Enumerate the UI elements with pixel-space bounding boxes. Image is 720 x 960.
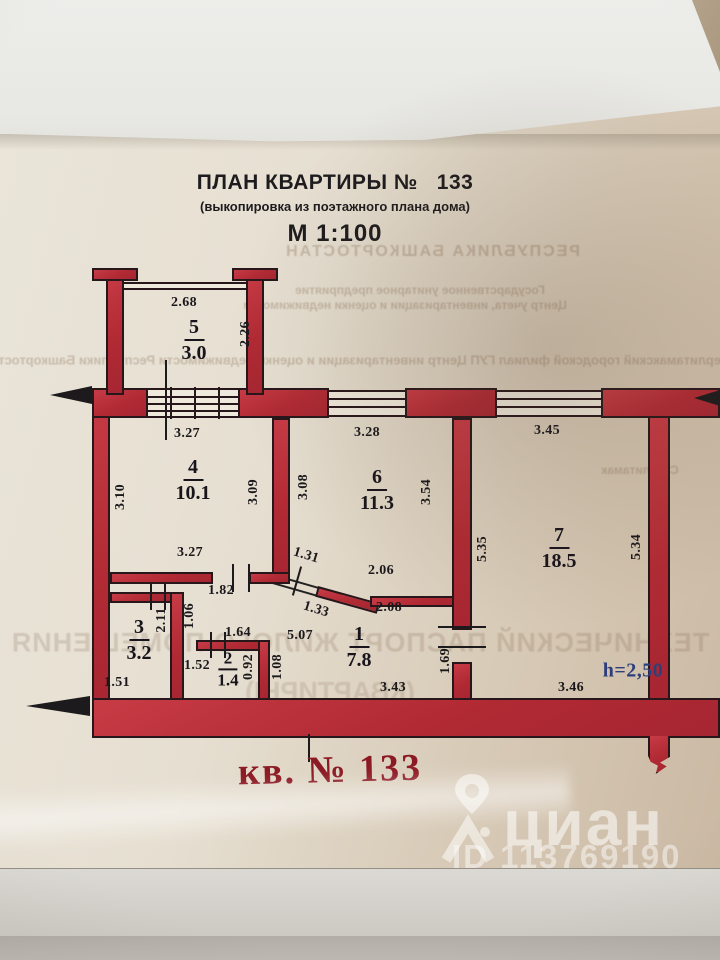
ceiling-height-note: h=2,50 xyxy=(603,660,664,683)
cian-watermark-text: циан xyxy=(503,786,664,860)
window-line xyxy=(329,406,405,408)
room-area: 10.1 xyxy=(176,481,211,505)
room-label-7: 7 18.5 xyxy=(542,525,577,573)
window-tick xyxy=(218,387,220,419)
bottom-paper-shadow xyxy=(0,936,720,960)
page-title-number: 133 xyxy=(437,171,474,194)
room-area: 11.3 xyxy=(360,491,394,515)
wall-room4-room6 xyxy=(272,418,290,580)
window-room7 xyxy=(497,390,601,417)
dim-3-43: 3.43 xyxy=(380,680,406,696)
dim-3-10: 3.10 xyxy=(113,484,129,510)
dim-1-31: 1.31 xyxy=(291,545,321,568)
room-number: 5 xyxy=(184,317,204,341)
room-label-5: 5 3.0 xyxy=(182,317,207,365)
page-title-text: ПЛАН КВАРТИРЫ № xyxy=(197,171,418,194)
door-tick-room7-a xyxy=(438,626,486,628)
dim-3-54: 3.54 xyxy=(419,479,435,505)
page-subtitle: (выкопировка из поэтажного плана дома) xyxy=(0,199,670,214)
room-label-1: 1 7.8 xyxy=(347,624,372,672)
scale-label: М 1:100 xyxy=(0,220,670,248)
wall-room6-room7 xyxy=(452,418,472,630)
room-number: 2 xyxy=(219,649,238,670)
wall-hall-room7-lower xyxy=(452,662,472,700)
window-line xyxy=(497,406,601,408)
dim-2-26: 2.26 xyxy=(238,321,254,347)
wall-room4-bottom-a xyxy=(110,572,213,584)
wall-balcony-left xyxy=(106,270,124,395)
dim-5-34: 5.34 xyxy=(629,534,645,560)
window-tick xyxy=(170,387,172,419)
wall-room4-bottom-b xyxy=(249,572,290,584)
door-tick-room3-a xyxy=(150,584,152,610)
window-line xyxy=(148,410,238,412)
door-tick-room2-a xyxy=(210,632,212,658)
room-number: 7 xyxy=(549,525,569,549)
dim-3-46: 3.46 xyxy=(558,680,584,696)
window-room6 xyxy=(329,390,405,417)
dim-3-45: 3.45 xyxy=(534,423,560,439)
dim-3-09: 3.09 xyxy=(246,479,262,505)
dim-2-08: 2.08 xyxy=(376,600,402,616)
arrow-icon-left-top xyxy=(50,386,92,404)
room-number: 1 xyxy=(349,624,369,648)
dim-5-35: 5.35 xyxy=(475,536,491,562)
room-number: 6 xyxy=(367,467,387,491)
window-tick xyxy=(194,387,196,419)
door-tick-room4-b xyxy=(248,564,250,592)
wall-balcony-cap-right xyxy=(232,268,278,281)
room-area: 3.0 xyxy=(182,341,207,365)
dim-5-07: 5.07 xyxy=(287,628,313,644)
room-label-2: 2 1.4 xyxy=(217,649,238,690)
wall-room2-right xyxy=(258,640,270,700)
wall-bottom-exterior xyxy=(92,698,720,738)
page-title: ПЛАН КВАРТИРЫ № 133 xyxy=(0,171,670,195)
ghost-text-enterprise: Государственное унитарное предприятие xyxy=(295,283,545,297)
wall-balcony-cap-left xyxy=(92,268,138,281)
arrow-icon-left-bottom xyxy=(26,696,90,716)
dim-1-64: 1.64 xyxy=(225,625,251,641)
room-number: 3 xyxy=(129,617,149,641)
cian-logo-pin-icon xyxy=(438,772,510,864)
dim-2-11: 2.11 xyxy=(154,607,170,632)
wall-top-pier-3 xyxy=(405,388,497,418)
window-line xyxy=(148,396,238,398)
room-label-3: 3 3.2 xyxy=(127,617,152,665)
dim-2-68: 2.68 xyxy=(171,295,197,311)
door-tick-balcony xyxy=(165,360,167,440)
dim-3-28: 3.28 xyxy=(354,425,380,441)
window-line xyxy=(148,403,238,405)
room-area: 7.8 xyxy=(347,648,372,672)
apartment-caption: кв. № 133 xyxy=(237,746,422,795)
dim-3-27-top: 3.27 xyxy=(174,426,200,442)
overlapping-paper-sheet xyxy=(0,0,720,152)
dim-1-08: 1.08 xyxy=(270,654,286,680)
dim-1-69: 1.69 xyxy=(438,648,454,674)
room-label-6: 6 11.3 xyxy=(360,467,394,515)
room-number: 4 xyxy=(183,457,203,481)
window-balcony-rail xyxy=(124,282,246,290)
room-label-4: 4 10.1 xyxy=(176,457,211,505)
room-area: 1.4 xyxy=(217,670,238,690)
room-area: 18.5 xyxy=(542,549,577,573)
ghost-text-center: Центр учета, инвентаризации и оценки нед… xyxy=(243,298,567,312)
dim-1-33: 1.33 xyxy=(301,599,331,622)
floorplan-photo: РЕСПУБЛИКА БАШКОРТОСТАН Государственное … xyxy=(0,0,720,960)
door-tick-room3-b xyxy=(164,584,166,610)
dim-1-82: 1.82 xyxy=(208,583,234,599)
wall-room3-top xyxy=(110,592,172,603)
window-line xyxy=(497,398,601,400)
dim-2-06: 2.06 xyxy=(368,563,394,579)
wall-right-exterior xyxy=(648,416,670,700)
dim-0-92: 0.92 xyxy=(241,654,257,680)
dim-1-06: 1.06 xyxy=(182,603,198,629)
dim-3-08: 3.08 xyxy=(296,474,312,500)
room-area: 3.2 xyxy=(127,641,152,665)
wall-right-break-stub xyxy=(648,736,670,774)
dim-1-52: 1.52 xyxy=(184,658,210,674)
window-line xyxy=(329,398,405,400)
dim-3-27-bottom: 3.27 xyxy=(177,545,203,561)
arrow-icon-right xyxy=(694,390,720,406)
dim-1-51: 1.51 xyxy=(104,675,130,691)
window-room4-balcony xyxy=(148,388,238,418)
